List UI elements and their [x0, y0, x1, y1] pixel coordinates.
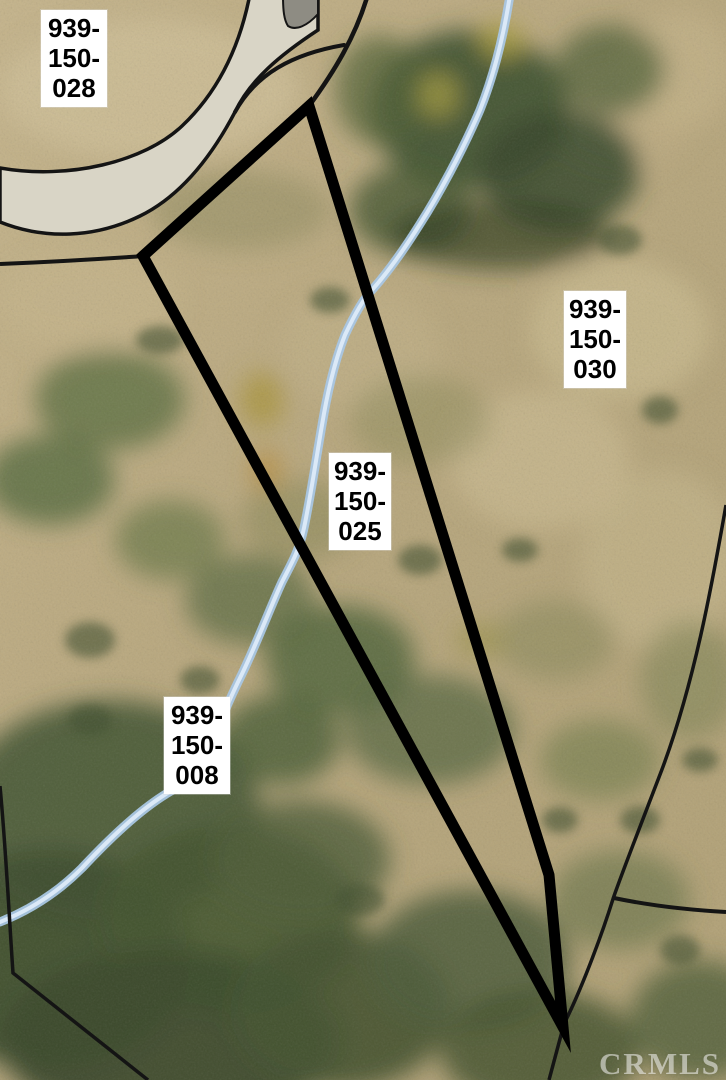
- parcel-label-028: 939- 150- 028: [41, 10, 107, 107]
- apn-line: 939-: [331, 456, 389, 486]
- aerial-parcel-map: 939- 150- 028 939- 150- 030 939- 150- 02…: [0, 0, 726, 1080]
- crmls-watermark: CRMLS: [599, 1046, 721, 1080]
- apn-line: 150-: [566, 324, 624, 354]
- apn-line: 008: [166, 760, 228, 790]
- apn-line: 939-: [566, 294, 624, 324]
- apn-line: 150-: [166, 730, 228, 760]
- apn-line: 939-: [43, 13, 105, 43]
- parcel-label-025-subject: 939- 150- 025: [329, 453, 391, 550]
- apn-line: 028: [43, 73, 105, 103]
- apn-line: 150-: [331, 486, 389, 516]
- apn-line: 025: [331, 516, 389, 546]
- parcel-label-008: 939- 150- 008: [164, 697, 230, 794]
- apn-line: 939-: [166, 700, 228, 730]
- parcel-label-030: 939- 150- 030: [564, 291, 626, 388]
- apn-line: 030: [566, 354, 624, 384]
- apn-line: 150-: [43, 43, 105, 73]
